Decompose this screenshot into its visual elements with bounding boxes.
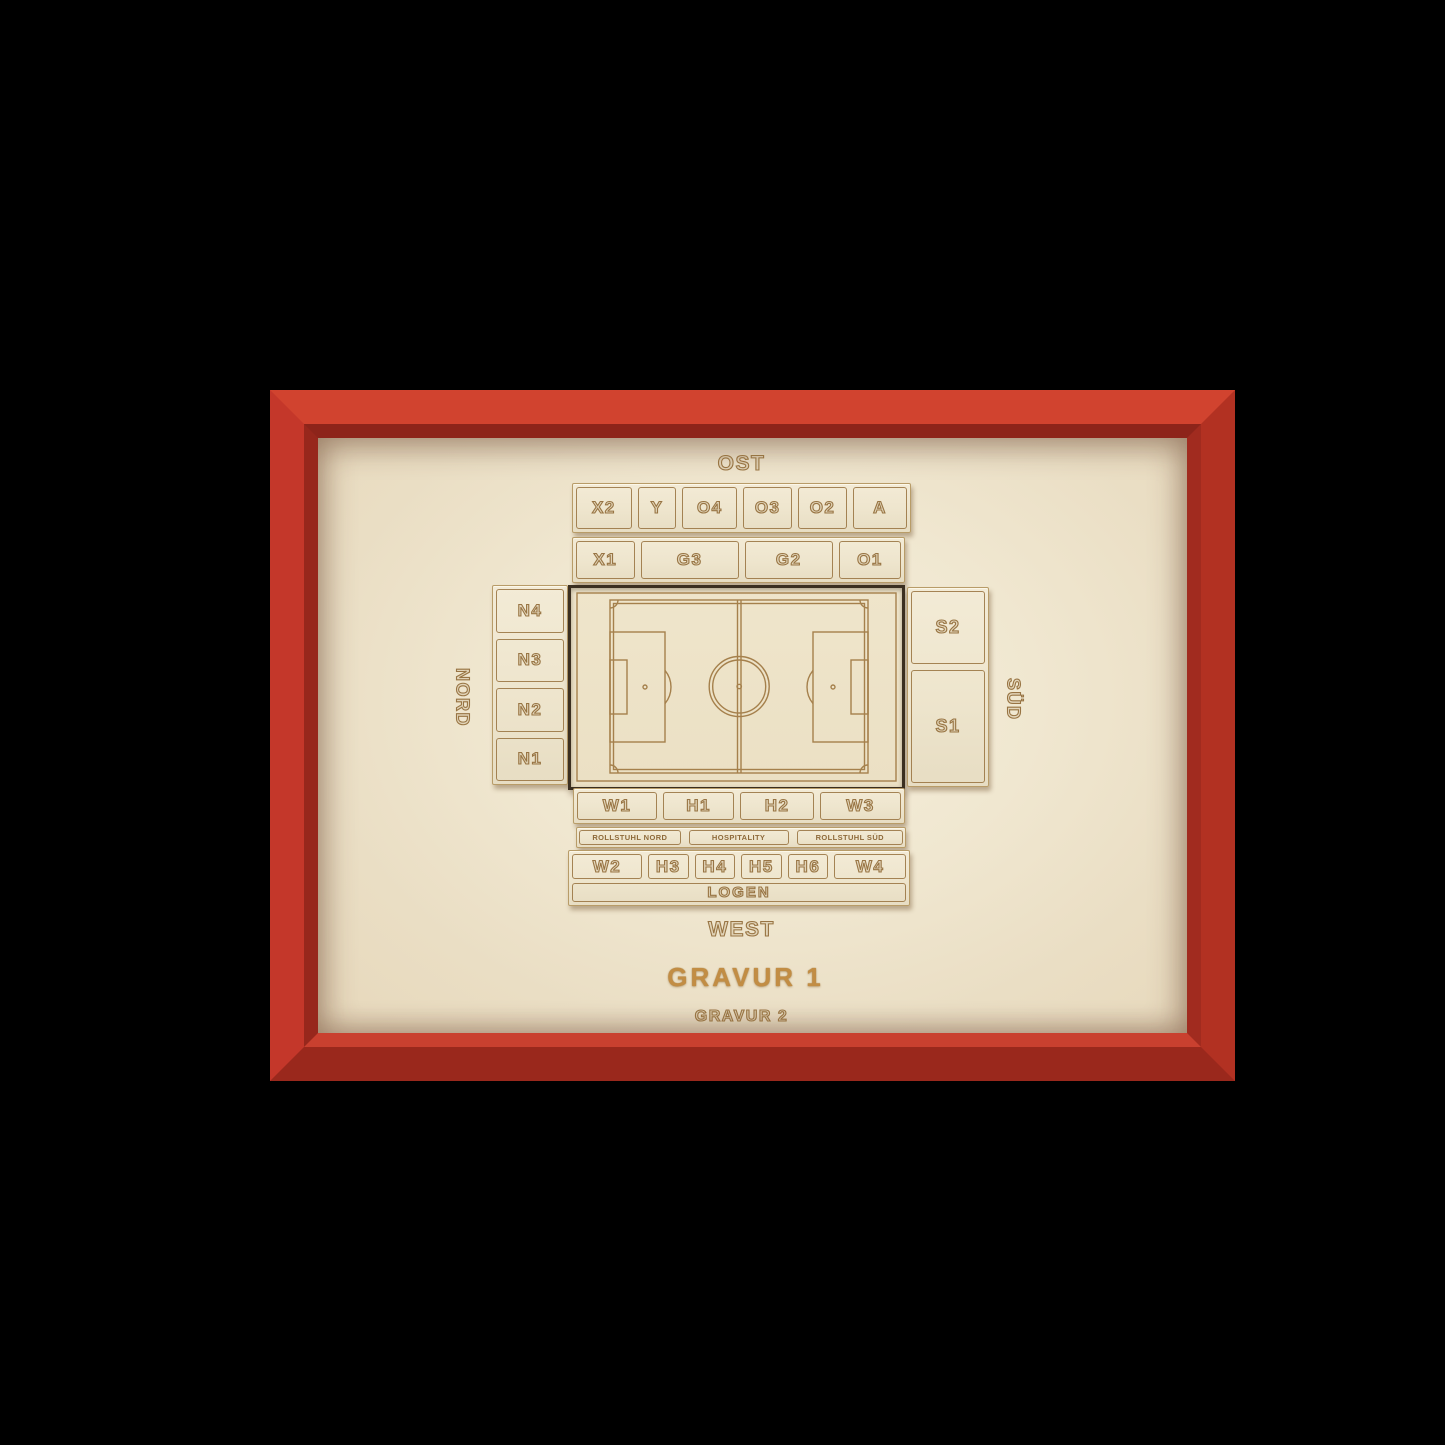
section-y: Y [638,487,677,529]
section-h2: H2 [740,792,814,820]
product-photo: OST X2 Y O4 O3 O2 A X1 G3 G2 [0,0,1445,1445]
south-stand-column: S2 S1 [907,587,989,787]
section-w3: W3 [820,792,901,820]
section-rollstuhl-nord: ROLLSTUHL NORD [579,830,681,845]
section-o3: O3 [743,487,792,529]
frame-inner-bevel: OST X2 Y O4 O3 O2 A X1 G3 G2 [304,424,1201,1047]
north-stand-column: N4 N3 N2 N1 [492,585,568,785]
section-n1: N1 [496,738,564,782]
section-h1: H1 [663,792,734,820]
section-logen: LOGEN [572,883,906,902]
engraving-gravur-1: GRAVUR 1 [576,962,915,993]
section-o4: O4 [682,487,737,529]
west-stand-row-3: W2 H3 H4 H5 H6 W4 [569,851,909,882]
section-w1: W1 [577,792,657,820]
section-hospitality: HOSPITALITY [689,830,789,845]
section-rollstuhl-sued: ROLLSTUHL SÜD [797,830,903,845]
section-g3: G3 [641,541,739,579]
east-stand-row-2: X1 G3 G2 O1 [572,537,905,583]
section-w2: W2 [572,854,642,879]
label-sued: SÜD [1000,634,1026,764]
section-w4: W4 [834,854,906,879]
engraving-gravur-2: GRAVUR 2 [572,1008,911,1026]
section-n2: N2 [496,688,564,732]
picture-frame: OST X2 Y O4 O3 O2 A X1 G3 G2 [270,390,1235,1081]
pitch-surface [571,588,902,787]
section-a: A [853,487,907,529]
west-stand-row-2: ROLLSTUHL NORD HOSPITALITY ROLLSTUHL SÜD [576,827,906,848]
section-g2: G2 [745,541,833,579]
section-o2: O2 [798,487,847,529]
section-n4: N4 [496,589,564,633]
west-stand-row-4: LOGEN [569,882,909,905]
section-s2: S2 [911,591,985,664]
wood-backboard: OST X2 Y O4 O3 O2 A X1 G3 G2 [318,438,1187,1033]
section-h4: H4 [695,854,736,879]
west-stand-row-3-4: W2 H3 H4 H5 H6 W4 LOGEN [568,850,910,906]
section-s1: S1 [911,670,985,783]
east-stand-row-1: X2 Y O4 O3 O2 A [572,483,911,533]
section-o1: O1 [839,541,901,579]
section-x1: X1 [576,541,635,579]
section-h3: H3 [648,854,689,879]
section-x2: X2 [576,487,632,529]
football-pitch-engraving [571,588,902,787]
section-n3: N3 [496,639,564,683]
pitch-plate [568,585,905,790]
west-stand-row-1: W1 H1 H2 W3 [573,788,905,824]
label-west: WEST [572,918,911,942]
section-h5: H5 [741,854,782,879]
label-ost: OST [572,452,911,476]
section-h6: H6 [788,854,829,879]
stadium-map: OST X2 Y O4 O3 O2 A X1 G3 G2 [318,438,1187,1033]
label-nord: NORD [449,632,475,762]
